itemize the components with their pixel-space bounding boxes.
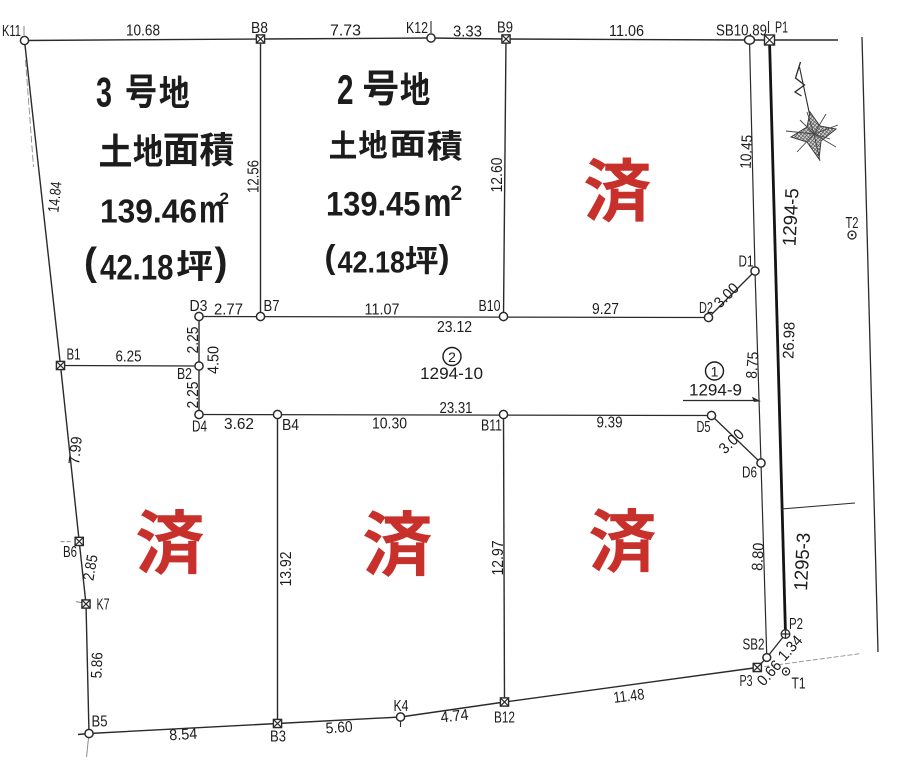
svg-text:8.54: 8.54 (169, 726, 198, 744)
svg-text:2: 2 (220, 189, 229, 208)
svg-text:2: 2 (451, 182, 463, 205)
svg-text:10.30: 10.30 (372, 416, 407, 433)
svg-text:2: 2 (337, 66, 354, 113)
svg-text:D5: D5 (697, 419, 711, 436)
svg-text:12.60: 12.60 (489, 157, 506, 192)
svg-text:4.74: 4.74 (440, 707, 470, 727)
svg-text:42.18: 42.18 (100, 249, 174, 288)
svg-text:1294-10: 1294-10 (420, 365, 483, 383)
svg-text:P3: P3 (740, 673, 753, 690)
svg-text:23.31: 23.31 (440, 400, 473, 417)
svg-text:T1: T1 (792, 676, 806, 693)
svg-text:D1: D1 (739, 254, 754, 271)
svg-text:B11: B11 (481, 418, 502, 435)
svg-text:D2: D2 (699, 300, 713, 317)
svg-text:B6: B6 (63, 544, 77, 561)
svg-text:2: 2 (448, 349, 456, 365)
svg-text:9.27: 9.27 (592, 301, 619, 318)
svg-text:D4: D4 (192, 419, 207, 436)
svg-text:11.07: 11.07 (365, 302, 400, 319)
svg-text:5.60: 5.60 (325, 719, 353, 738)
svg-text:4.50: 4.50 (206, 346, 223, 374)
svg-text:26.98: 26.98 (780, 322, 798, 360)
svg-text:42.18: 42.18 (338, 245, 406, 280)
svg-text:(: ( (325, 238, 336, 275)
svg-text:B9: B9 (497, 20, 513, 37)
svg-text:1: 1 (711, 364, 719, 380)
svg-text:m: m (424, 182, 452, 225)
svg-text:D6: D6 (742, 465, 757, 482)
svg-text:K4: K4 (394, 698, 409, 715)
svg-text:9.39: 9.39 (597, 415, 623, 432)
svg-text:SB10.89: SB10.89 (716, 23, 767, 40)
svg-text:5.86: 5.86 (89, 652, 107, 679)
svg-text:SB2: SB2 (743, 637, 765, 654)
svg-text:K11: K11 (2, 23, 21, 40)
svg-text:B4: B4 (282, 417, 299, 434)
svg-text:3.62: 3.62 (224, 416, 254, 433)
svg-text:1295-3: 1295-3 (791, 532, 815, 591)
svg-text:1294-5: 1294-5 (780, 188, 804, 247)
svg-text:(: ( (84, 241, 97, 284)
svg-text:10.45: 10.45 (738, 134, 757, 169)
svg-text:8.80: 8.80 (749, 542, 767, 571)
svg-text:7.73: 7.73 (330, 23, 361, 40)
svg-text:P1: P1 (775, 20, 788, 37)
svg-text:139.46: 139.46 (100, 194, 197, 231)
svg-text:B7: B7 (264, 298, 280, 315)
svg-text:1294-9: 1294-9 (689, 382, 742, 400)
svg-text:3.33: 3.33 (453, 24, 482, 41)
svg-text:12.97: 12.97 (490, 541, 507, 576)
svg-text:23.12: 23.12 (437, 319, 472, 336)
svg-text:10.68: 10.68 (126, 23, 160, 40)
svg-text:2.77: 2.77 (214, 302, 243, 319)
svg-text:B10: B10 (479, 298, 501, 315)
svg-text:K12: K12 (406, 20, 428, 37)
svg-text:7.99: 7.99 (66, 436, 86, 466)
svg-text:B3: B3 (270, 729, 286, 746)
svg-text:14.84: 14.84 (45, 180, 65, 213)
svg-text:2.25: 2.25 (185, 382, 202, 409)
svg-text:139.45: 139.45 (326, 186, 421, 224)
svg-text:2.25: 2.25 (185, 327, 202, 354)
svg-text:B5: B5 (92, 714, 108, 731)
svg-text:3: 3 (96, 69, 112, 116)
svg-text:B12: B12 (494, 710, 515, 727)
svg-text:D3: D3 (190, 298, 208, 315)
svg-text:B1: B1 (67, 347, 81, 364)
svg-text:P2: P2 (789, 616, 803, 633)
svg-text:12.56: 12.56 (246, 160, 263, 193)
svg-text:13.92: 13.92 (278, 552, 295, 587)
svg-text:): ) (439, 238, 450, 275)
svg-text:K7: K7 (97, 597, 110, 614)
svg-text:B2: B2 (177, 366, 192, 383)
svg-text:6.25: 6.25 (116, 349, 142, 366)
svg-text:8.75: 8.75 (744, 351, 763, 379)
svg-text:T2: T2 (846, 215, 859, 232)
svg-text:11.06: 11.06 (609, 23, 644, 40)
svg-text:B8: B8 (251, 20, 268, 37)
svg-text:): ) (215, 241, 228, 284)
